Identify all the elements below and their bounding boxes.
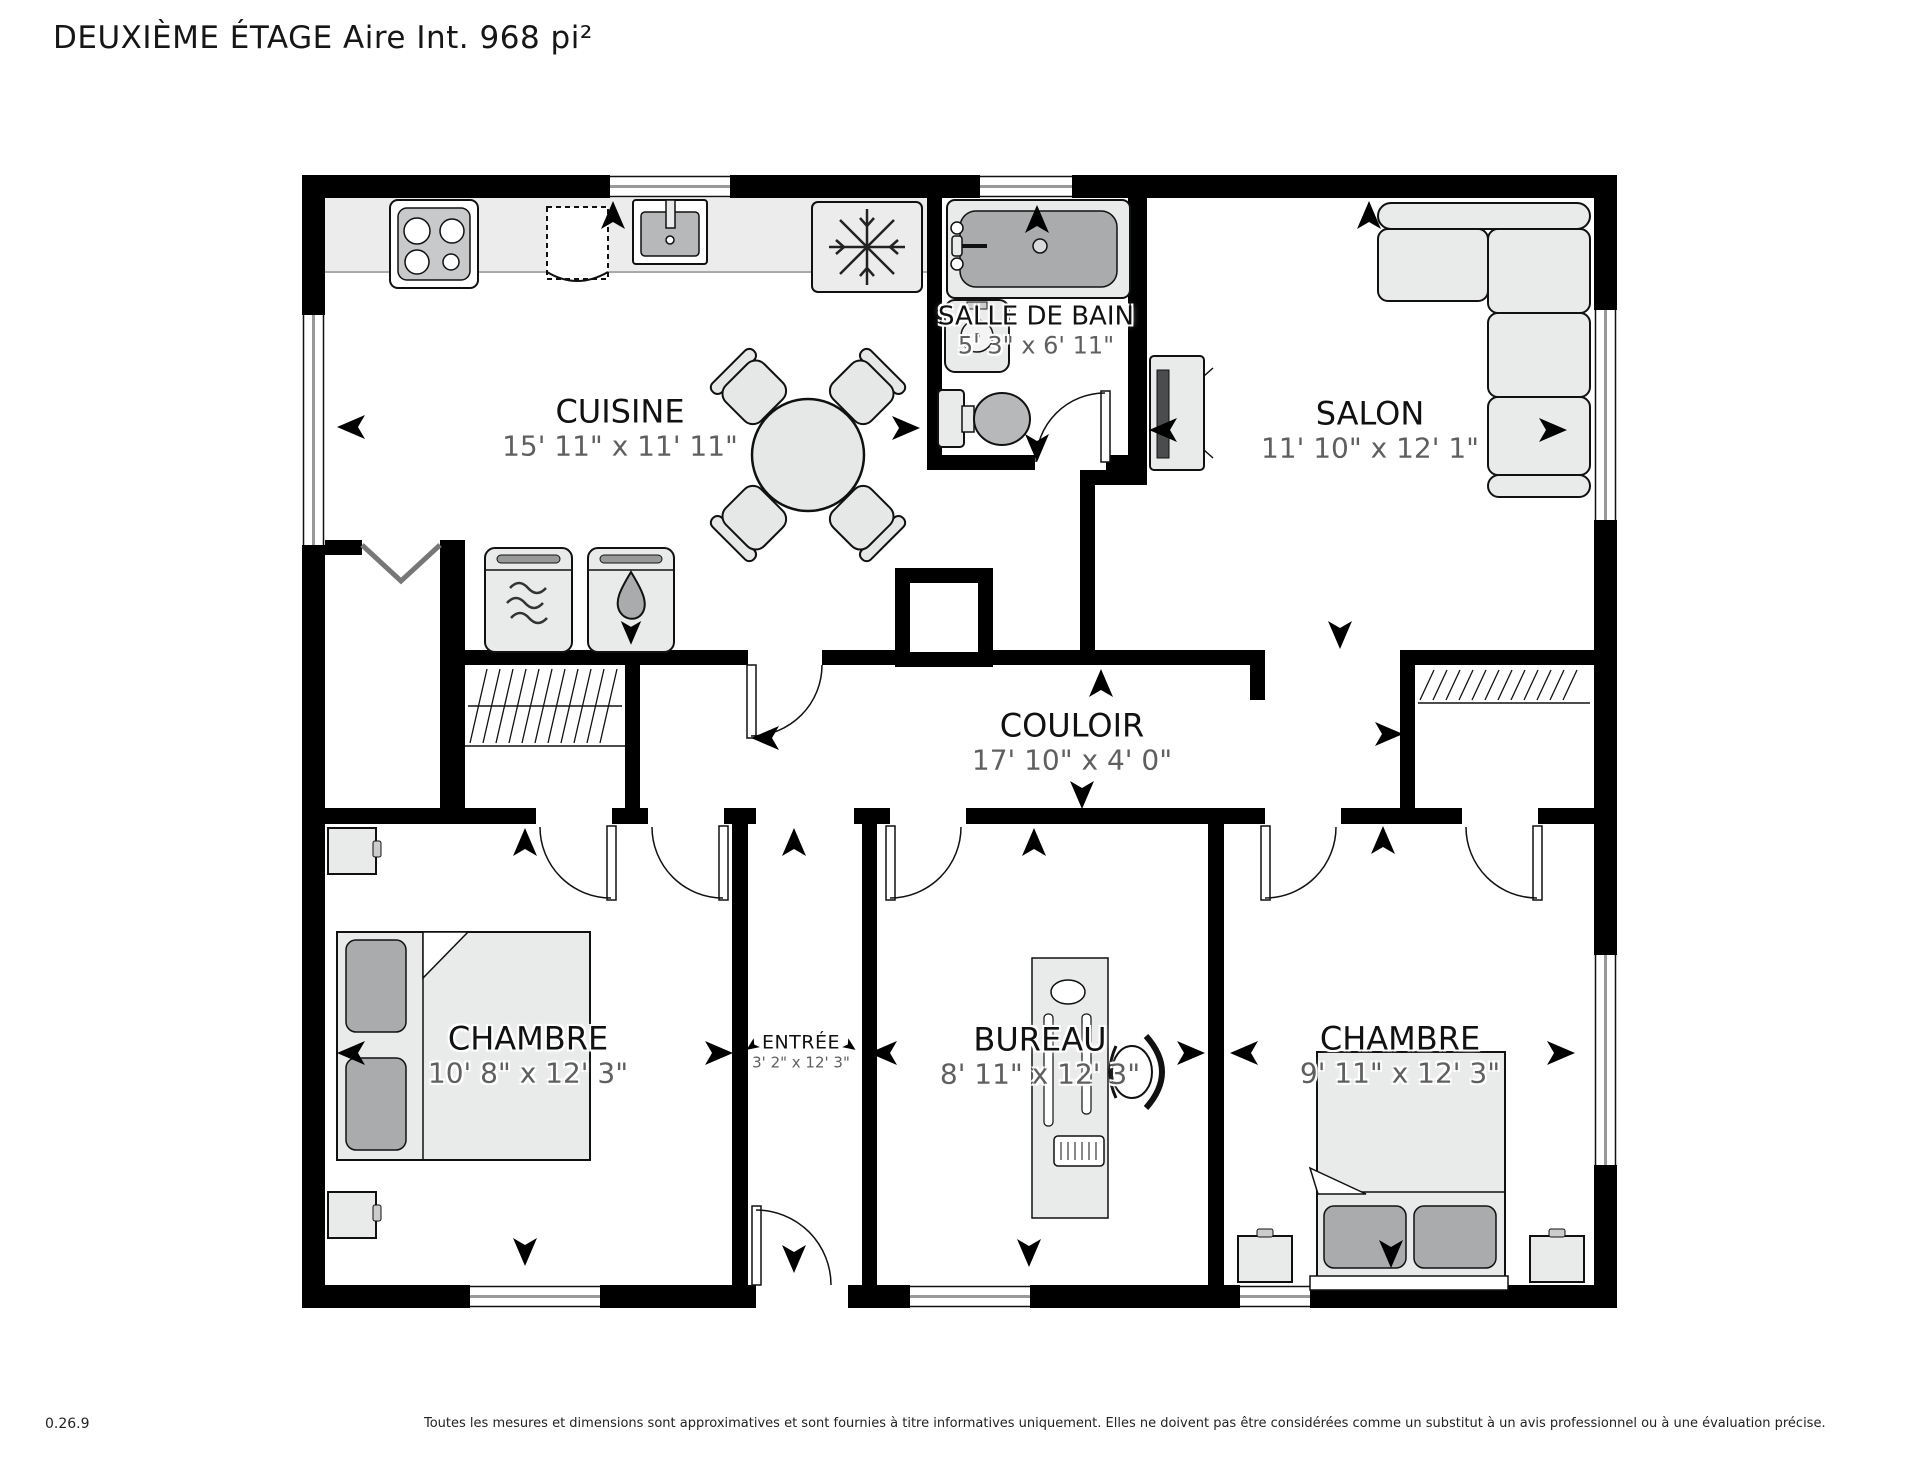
room-label-entree: ENTRÉE 3' 2" x 12' 3" <box>752 1032 850 1071</box>
room-dims: 5' 3" x 6' 11" <box>938 332 1134 360</box>
door-closet-right <box>1466 826 1542 900</box>
door-closet-left <box>540 826 616 900</box>
door-bathroom <box>1036 391 1110 462</box>
floorplan-page: DEUXIÈME ÉTAGE Aire Int. 968 pi² CUISINE… <box>0 0 1920 1483</box>
room-label-couloir: COULOIR 17' 10" x 4' 0" <box>972 708 1172 777</box>
room-name: BUREAU <box>940 1022 1140 1059</box>
dining-table-icon <box>708 346 907 563</box>
door-chambre-right <box>1261 826 1336 900</box>
door-chambre-left <box>652 826 728 900</box>
closet-left-hatch <box>465 669 625 746</box>
stove-icon <box>390 200 478 288</box>
room-dims: 11' 10" x 12' 1" <box>1261 432 1479 464</box>
room-name: SALLE DE BAIN <box>938 302 1134 332</box>
room-name: CUISINE <box>502 394 738 431</box>
door-bureau <box>886 826 961 900</box>
window-chambre-left-bottom <box>470 1285 600 1308</box>
door-kitchen-couloir <box>747 665 822 738</box>
room-label-chambre-droite: CHAMBRE 9' 11" x 12' 3" <box>1300 1021 1500 1090</box>
room-label-chambre-gauche: CHAMBRE 10' 8" x 12' 3" <box>428 1021 628 1090</box>
nightstand-icon <box>328 1192 381 1238</box>
bifold-door <box>362 545 440 581</box>
room-name: ENTRÉE <box>752 1032 850 1054</box>
disclaimer-text: Toutes les mesures et dimensions sont ap… <box>424 1416 1826 1431</box>
door-entry <box>752 1206 831 1285</box>
page-title: DEUXIÈME ÉTAGE Aire Int. 968 pi² <box>53 20 593 56</box>
dryer-icon <box>588 548 674 652</box>
nightstand-icon <box>1530 1229 1584 1282</box>
room-dims: 15' 11" x 11' 11" <box>502 430 738 462</box>
duct-chase <box>895 568 993 667</box>
room-dims: 17' 10" x 4' 0" <box>972 744 1172 776</box>
room-dims: 9' 11" x 12' 3" <box>1300 1057 1500 1089</box>
room-name: CHAMBRE <box>1300 1021 1500 1058</box>
room-dims: 3' 2" x 12' 3" <box>752 1054 850 1071</box>
room-label-cuisine: CUISINE 15' 11" x 11' 11" <box>502 394 738 463</box>
dishwasher-icon <box>547 207 608 281</box>
room-name: COULOIR <box>972 708 1172 745</box>
room-dims: 8' 11" x 12' 3" <box>940 1058 1140 1090</box>
window-chambre2-bottom <box>1240 1285 1310 1308</box>
tv-icon <box>1150 356 1213 470</box>
window-bureau-bottom <box>910 1285 1030 1308</box>
sink-icon <box>633 200 707 264</box>
closet-right-hatch <box>1418 670 1590 703</box>
window-kitchen-top <box>610 175 730 198</box>
window-chambre-right <box>1594 955 1617 1165</box>
nightstand-icon <box>1238 1229 1292 1282</box>
nightstand-icon <box>328 828 381 874</box>
room-dims: 10' 8" x 12' 3" <box>428 1057 628 1089</box>
fridge-icon <box>812 202 922 292</box>
washer-icon <box>485 548 572 652</box>
room-label-bureau: BUREAU 8' 11" x 12' 3" <box>940 1022 1140 1091</box>
room-label-salle-de-bain: SALLE DE BAIN 5' 3" x 6' 11" <box>938 302 1134 359</box>
window-bath-top <box>980 175 1072 198</box>
room-label-salon: SALON 11' 10" x 12' 1" <box>1261 396 1479 465</box>
room-name: SALON <box>1261 396 1479 433</box>
window-kitchen-left <box>302 315 325 545</box>
version-label: 0.26.9 <box>45 1416 90 1432</box>
floorplan-svg <box>0 0 1920 1483</box>
window-salon-right <box>1594 310 1617 520</box>
toilet-icon <box>938 390 1030 447</box>
room-name: CHAMBRE <box>428 1021 628 1058</box>
